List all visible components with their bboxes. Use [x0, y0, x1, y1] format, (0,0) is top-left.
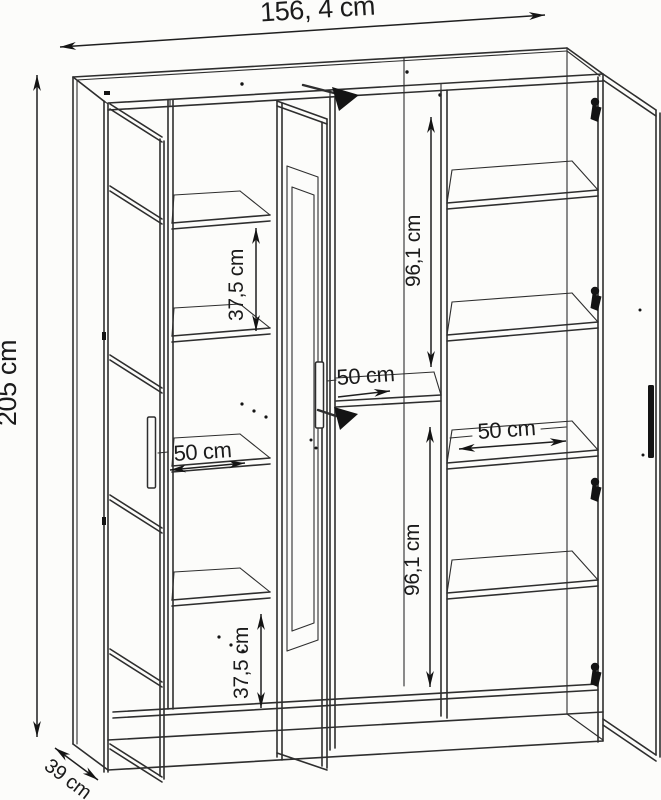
dimension-annotations: 156, 4 cm 205 cm 39 cm 37,5 cm 37,5 cm 9… — [0, 0, 566, 800]
right-shelf-column — [447, 161, 598, 599]
hinge-icon — [591, 478, 602, 502]
hanging-rail-bracket-icon — [332, 87, 359, 111]
dim-shelf-width-right-label: 50 cm — [477, 415, 537, 444]
dim-shelf-gap-lower-label: 37,5 cm — [230, 627, 253, 699]
wardrobe-technical-drawing: 156, 4 cm 205 cm 39 cm 37,5 cm 37,5 cm 9… — [0, 0, 661, 800]
hinge-mark-icon — [104, 91, 110, 95]
hinge-icon — [591, 663, 602, 687]
middle-hanging-column — [303, 85, 447, 750]
dim-shelf-width-right-arrow — [459, 441, 566, 449]
mirror-door-handle — [316, 362, 324, 428]
right-door-handle — [648, 385, 654, 458]
wardrobe-drawing-canvas: 156, 4 cm 205 cm 39 cm 37,5 cm 37,5 cm 9… — [0, 0, 661, 800]
dim-shelf-width-middle-label: 50 cm — [336, 361, 396, 390]
dim-height-label: 205 cm — [0, 340, 22, 426]
left-door-handle — [148, 417, 156, 488]
hinge-mark-icon — [102, 517, 106, 525]
left-shelf-column — [168, 100, 270, 709]
hinge-icon — [591, 98, 602, 122]
hanging-rail-bracket-icon — [334, 407, 358, 430]
dim-shelf-gap-upper-label: 37,5 cm — [225, 249, 248, 321]
dim-hanging-lower-label: 96,1 cm — [401, 524, 424, 596]
dim-width-label: 156, 4 cm — [259, 0, 376, 27]
hinge-mark-icon — [102, 332, 106, 340]
mirror-door — [277, 101, 327, 770]
dim-depth-label: 39 cm — [40, 755, 95, 800]
right-door — [591, 74, 661, 761]
hinge-icon — [591, 287, 602, 311]
dim-shelf-width-left-label: 50 cm — [173, 437, 233, 466]
dim-shelf-width-middle-arrow — [338, 391, 390, 397]
dim-hanging-upper-label: 96,1 cm — [402, 215, 425, 287]
mirror-panel — [287, 166, 318, 651]
fitting-dot — [240, 82, 243, 85]
fitting-dot — [405, 70, 408, 73]
left-door — [102, 91, 164, 782]
